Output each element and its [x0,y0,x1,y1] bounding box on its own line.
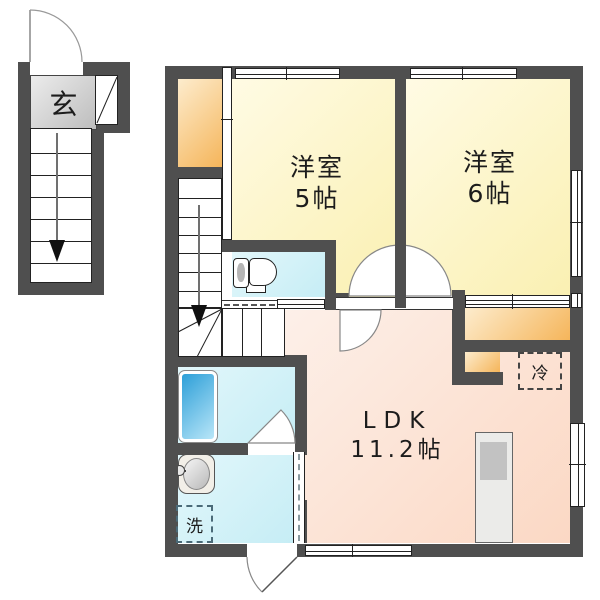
stairs-down-arrowhead-main [191,305,207,327]
stairs-down-arrowhead-left [49,240,65,262]
door-swing-overlay [0,0,600,600]
stairs-down-arrow-main [198,205,200,306]
stairs-down-arrow-left [56,133,58,241]
floor-plan: 玄 [0,0,600,600]
